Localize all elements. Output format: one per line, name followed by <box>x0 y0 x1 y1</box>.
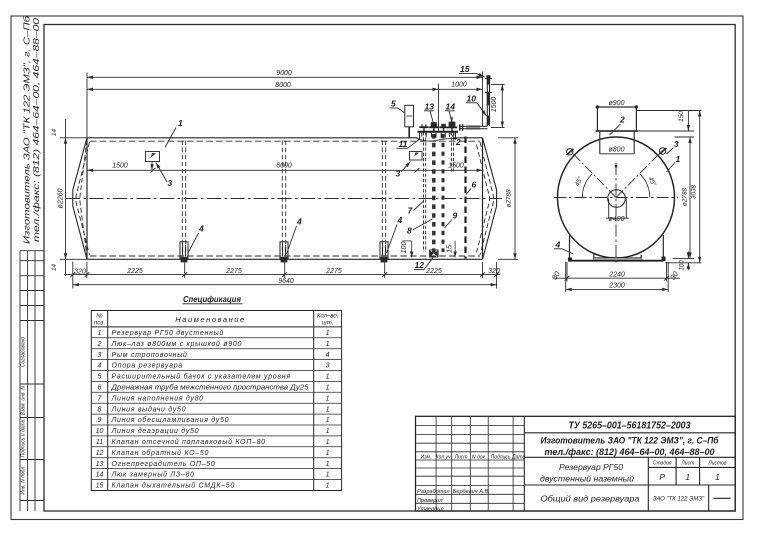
svg-text:4: 4 <box>198 224 204 234</box>
svg-text:4: 4 <box>326 352 330 359</box>
svg-text:100: 100 <box>679 260 686 271</box>
svg-text:Линия деаэрации ду50: Линия деаэрации ду50 <box>111 427 200 435</box>
svg-text:Изм.: Изм. <box>421 454 432 460</box>
svg-text:1: 1 <box>326 472 330 479</box>
svg-text:Общий вид резервуара: Общий вид резервуара <box>541 493 640 503</box>
svg-text:1: 1 <box>676 154 681 164</box>
svg-text:N док.: N док. <box>472 454 486 460</box>
svg-text:Р: Р <box>659 472 665 482</box>
svg-text:1: 1 <box>326 374 330 381</box>
svg-text:1500: 1500 <box>448 163 464 170</box>
svg-text:4: 4 <box>98 363 102 370</box>
svg-text:Линия наполнения ду80: Линия наполнения ду80 <box>111 394 204 402</box>
svg-text:1500: 1500 <box>491 97 498 113</box>
svg-text:Клапан обратный КО–50: Клапан обратный КО–50 <box>112 449 210 457</box>
svg-text:Стадия: Стадия <box>653 461 672 467</box>
svg-text:9: 9 <box>453 211 458 221</box>
svg-text:шт.: шт. <box>322 321 334 327</box>
svg-text:1: 1 <box>178 118 183 128</box>
svg-text:ø2788: ø2788 <box>506 189 513 208</box>
svg-text:ø800: ø800 <box>609 147 625 154</box>
svg-text:2275: 2275 <box>225 268 242 275</box>
svg-text:№: № <box>96 313 103 320</box>
svg-text:Проверил: Проверил <box>417 498 443 504</box>
svg-text:Линия обесшламливания ду50: Линия обесшламливания ду50 <box>111 416 230 424</box>
svg-text:2: 2 <box>455 137 461 147</box>
svg-text:8: 8 <box>407 226 412 236</box>
svg-text:Клапан отсечной поплавковый КО: Клапан отсечной поплавковый КОП–80 <box>112 438 266 446</box>
svg-text:Подпись: Подпись <box>491 454 511 460</box>
svg-text:15: 15 <box>447 245 454 253</box>
svg-text:1: 1 <box>326 428 330 435</box>
svg-text:11: 11 <box>96 439 103 446</box>
svg-text:тел./факс: (812) 464–64–00, 46: тел./факс: (812) 464–64–00, 464–88–00 <box>545 447 716 457</box>
svg-text:320: 320 <box>74 268 86 275</box>
svg-text:2: 2 <box>97 341 102 348</box>
svg-text:15: 15 <box>460 64 470 74</box>
svg-text:7: 7 <box>98 395 103 402</box>
svg-text:100: 100 <box>401 242 408 254</box>
svg-text:Дренажная труба межстенного пр: Дренажная труба межстенного пространства… <box>110 384 308 392</box>
svg-text:5: 5 <box>98 374 102 381</box>
svg-text:Спецификация: Спецификация <box>183 294 241 304</box>
svg-text:ЗАО "ТК 122 ЭМЗ": ЗАО "ТК 122 ЭМЗ" <box>653 497 705 503</box>
svg-text:3: 3 <box>396 169 401 179</box>
svg-text:Согласовано: Согласовано <box>20 337 26 368</box>
svg-text:Кол.уч.: Кол.уч. <box>436 454 452 460</box>
svg-text:ø2788: ø2788 <box>682 187 689 206</box>
svg-text:1: 1 <box>326 417 330 424</box>
svg-text:Рым строповочный: Рым строповочный <box>112 351 188 359</box>
svg-text:1500: 1500 <box>112 163 128 170</box>
svg-text:Резервуар РГ50 двустенный: Резервуар РГ50 двустенный <box>112 329 225 337</box>
svg-text:3: 3 <box>674 139 679 149</box>
svg-text:320: 320 <box>488 268 500 275</box>
svg-text:Дата: Дата <box>511 454 525 460</box>
svg-text:3038: 3038 <box>691 184 698 199</box>
svg-text:1: 1 <box>326 450 330 457</box>
svg-text:1000: 1000 <box>451 82 467 89</box>
svg-text:14: 14 <box>51 129 58 136</box>
svg-text:1: 1 <box>715 472 720 482</box>
svg-text:1: 1 <box>326 461 330 468</box>
svg-text:14: 14 <box>96 472 104 479</box>
svg-text:1: 1 <box>326 395 330 402</box>
svg-text:Огнепреградитель ОП–50: Огнепреградитель ОП–50 <box>112 460 216 468</box>
svg-text:Подпись и дата: Подпись и дата <box>20 419 26 457</box>
svg-text:Изготовитель ЗАО "ТК 122 ЭМЗ",: Изготовитель ЗАО "ТК 122 ЭМЗ", г. С–Пб <box>541 436 719 446</box>
svg-text:45°: 45° <box>573 175 585 188</box>
svg-text:8000: 8000 <box>275 82 291 89</box>
svg-text:Линия выдачи ду50: Линия выдачи ду50 <box>111 405 187 413</box>
svg-text:поз.: поз. <box>94 321 105 327</box>
svg-text:15: 15 <box>96 483 104 490</box>
svg-text:6: 6 <box>472 180 477 190</box>
svg-text:Опора резервуара: Опора резервуара <box>112 363 183 370</box>
svg-text:13: 13 <box>425 102 435 112</box>
svg-text:2240: 2240 <box>608 271 625 278</box>
svg-text:двустенный наземный: двустенный наземный <box>540 474 634 484</box>
svg-text:Взам. инв. N: Взам. инв. N <box>20 386 26 416</box>
svg-text:30: 30 <box>550 269 562 282</box>
svg-text:1: 1 <box>98 330 102 337</box>
svg-text:тел./факс: (812) 464–64–00, 46: тел./факс: (812) 464–64–00, 464–88–00 <box>31 18 41 242</box>
svg-text:ø900: ø900 <box>609 100 625 107</box>
svg-text:7: 7 <box>408 206 414 216</box>
svg-text:3: 3 <box>98 352 102 359</box>
svg-text:5: 5 <box>391 99 396 109</box>
svg-text:6: 6 <box>98 385 102 392</box>
svg-text:Наименование: Наименование <box>175 315 245 324</box>
svg-text:Лист: Лист <box>454 454 468 460</box>
svg-text:2225: 2225 <box>425 268 442 275</box>
svg-text:1: 1 <box>326 439 330 446</box>
svg-text:3: 3 <box>168 178 173 188</box>
svg-text:2300: 2300 <box>608 282 625 289</box>
svg-text:13: 13 <box>96 461 104 468</box>
svg-text:8: 8 <box>98 406 102 413</box>
svg-text:12: 12 <box>415 260 425 270</box>
svg-text:ø2260: ø2260 <box>57 188 64 208</box>
svg-text:9640: 9640 <box>278 278 294 285</box>
svg-text:1: 1 <box>326 385 330 392</box>
svg-text:Разработал: Разработал <box>417 489 450 495</box>
svg-text:4: 4 <box>397 215 403 225</box>
svg-text:1: 1 <box>326 341 330 348</box>
svg-text:Кол–во,: Кол–во, <box>317 314 338 320</box>
svg-text:Бердевич А.В.: Бердевич А.В. <box>453 489 490 495</box>
svg-text:Изготовитель ЗАО "ТК 122 ЭМЗ",: Изготовитель ЗАО "ТК 122 ЭМЗ", г. С–Пб <box>22 15 32 244</box>
svg-text:Инв. N подл.: Инв. N подл. <box>20 465 26 494</box>
svg-text:12: 12 <box>96 450 104 457</box>
svg-text:Люк замерный ЛЗ–80: Люк замерный ЛЗ–80 <box>111 471 195 479</box>
svg-text:11: 11 <box>399 139 408 149</box>
svg-text:14: 14 <box>446 102 456 112</box>
svg-text:14: 14 <box>51 264 58 271</box>
svg-text:10: 10 <box>96 428 104 435</box>
svg-text:ø400: ø400 <box>609 216 625 223</box>
svg-text:1: 1 <box>326 483 330 490</box>
svg-text:1: 1 <box>685 472 690 482</box>
svg-text:4: 4 <box>296 217 302 227</box>
svg-text:45°: 45° <box>647 175 659 188</box>
svg-text:Резервуар РГ50: Резервуар РГ50 <box>559 462 623 472</box>
svg-text:2225: 2225 <box>126 268 143 275</box>
svg-text:1: 1 <box>326 406 330 413</box>
svg-text:10: 10 <box>467 94 477 104</box>
svg-text:2: 2 <box>619 115 625 125</box>
svg-text:Расширительный бачок с указате: Расширительный бачок с указателем уровня <box>112 373 291 381</box>
svg-text:Утвердил: Утвердил <box>416 507 444 513</box>
svg-text:ТУ 5265–001–56181752–2003: ТУ 5265–001–56181752–2003 <box>569 420 691 431</box>
svg-text:6000: 6000 <box>276 162 292 169</box>
svg-text:Лист: Лист <box>680 461 694 467</box>
svg-text:9: 9 <box>98 417 102 424</box>
svg-text:Клапан дыхательный СМДК–50: Клапан дыхательный СМДК–50 <box>112 482 235 490</box>
svg-text:4: 4 <box>555 240 561 250</box>
svg-text:Люк–лаз ø800мм с крышкой ø900: Люк–лаз ø800мм с крышкой ø900 <box>111 340 243 348</box>
svg-text:150: 150 <box>678 111 685 122</box>
svg-text:1: 1 <box>326 330 330 337</box>
svg-text:Листов: Листов <box>707 461 727 467</box>
svg-text:9000: 9000 <box>276 70 292 77</box>
svg-text:3: 3 <box>326 363 330 370</box>
svg-text:2275: 2275 <box>325 268 342 275</box>
